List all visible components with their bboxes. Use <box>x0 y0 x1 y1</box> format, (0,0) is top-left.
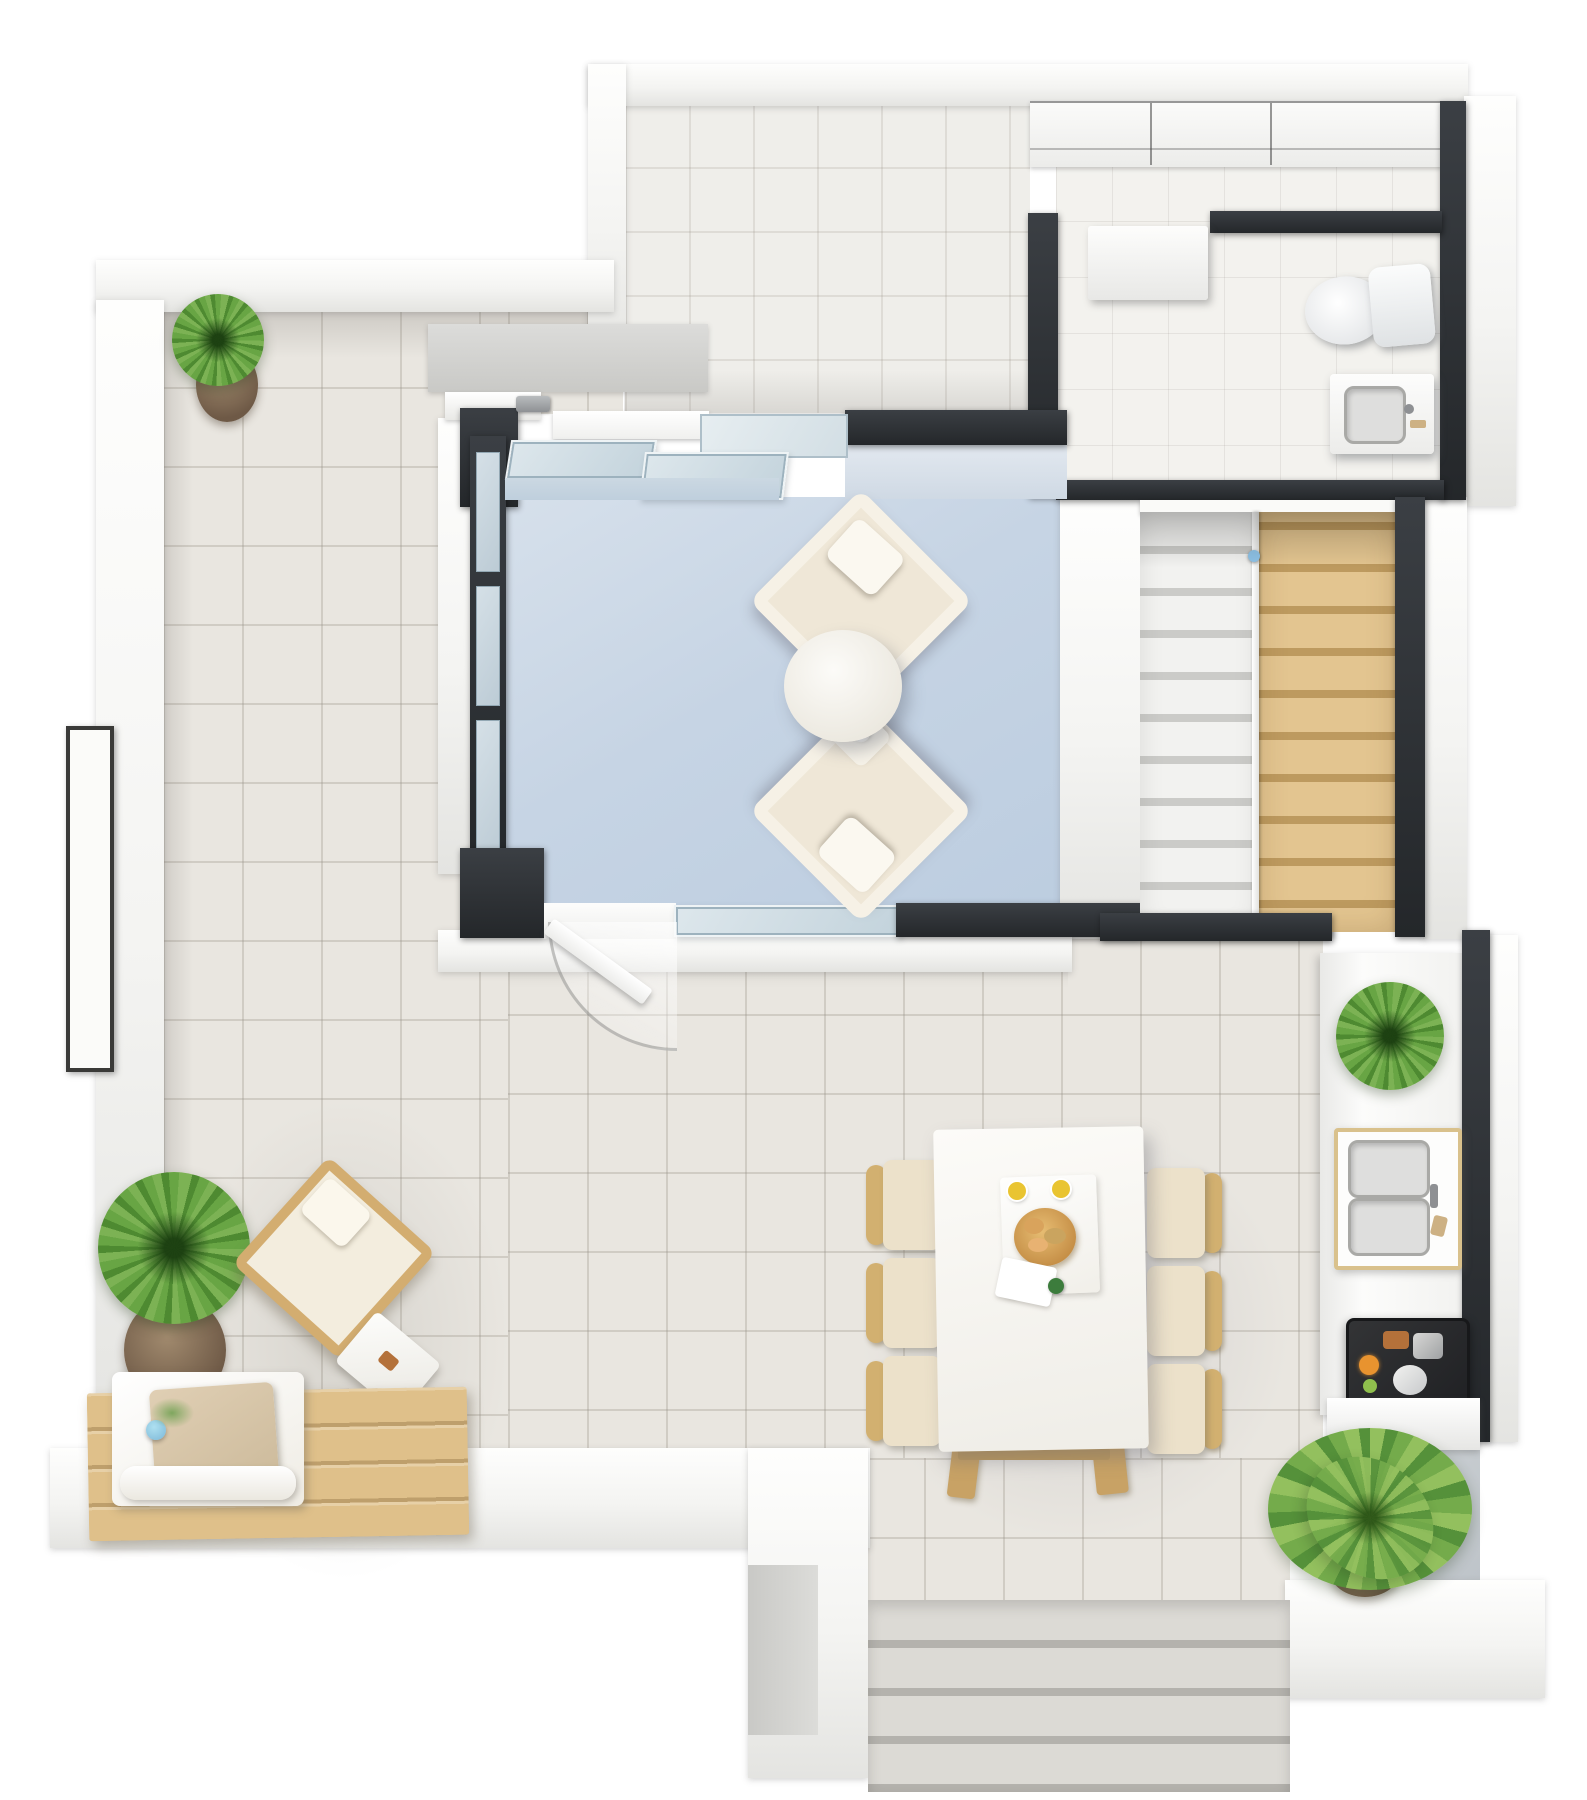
closet-top-seam <box>1030 101 1442 103</box>
steps-side-wall-face <box>748 1565 818 1735</box>
toilet <box>1302 260 1445 358</box>
bathroom-wall-shelf <box>1088 226 1208 300</box>
exit-steps <box>868 1600 1290 1792</box>
chair-back <box>1202 1271 1222 1351</box>
sliding-door-track <box>553 411 709 439</box>
cooktop-bowl <box>1393 1365 1427 1395</box>
slab-right-of-steps <box>1285 1580 1545 1698</box>
bread-basket <box>1014 1208 1076 1266</box>
floor-plan-render <box>0 0 1587 1800</box>
living-north-wall <box>845 410 1067 445</box>
bathroom-east-wall <box>1440 101 1466 500</box>
bath-faucet <box>1404 404 1414 414</box>
sliding-door-fitting <box>516 396 550 412</box>
dining-chair-right-3 <box>1146 1364 1222 1456</box>
kitchen-faucet <box>1430 1184 1438 1208</box>
glass-pane-1 <box>476 452 500 572</box>
drink-glass-1 <box>1008 1182 1026 1200</box>
west-wall-slot-window <box>66 726 114 1072</box>
chair-seat <box>1147 1168 1205 1258</box>
lounge-chair-cushion <box>299 1176 373 1249</box>
closet-gap-line <box>1030 148 1442 150</box>
stairwell-left-wall <box>1060 497 1140 939</box>
glass-pane-2 <box>476 586 500 706</box>
bathroom-vanity <box>1330 374 1434 454</box>
armchair-south-pillow <box>816 814 898 895</box>
bread-roll <box>1028 1238 1048 1252</box>
right-outer-band-top <box>1464 96 1516 506</box>
stair-railing <box>1252 512 1259 932</box>
chair-back <box>1202 1173 1222 1253</box>
dining-chair-right-1 <box>1146 1168 1222 1260</box>
cooktop-food-orange <box>1359 1355 1379 1375</box>
tray-table-item <box>377 1350 400 1372</box>
top-outer-wall <box>588 64 1468 106</box>
cooktop-food-green <box>1363 1379 1377 1393</box>
vanity-accessory <box>1410 420 1426 428</box>
dining-chair-left-3 <box>866 1356 942 1448</box>
closet-door-seam <box>1150 103 1152 165</box>
toilet-tank <box>1367 263 1436 348</box>
glass-pane-3 <box>476 720 500 860</box>
right-outer-band-kitchen <box>1488 935 1518 1442</box>
garnish-green <box>1048 1278 1064 1294</box>
armchair-north-pillow <box>824 516 906 597</box>
dining-chair-left-2 <box>866 1258 942 1350</box>
chair-seat <box>883 1160 941 1250</box>
drink-glass-2 <box>1052 1180 1070 1198</box>
daybed-vase-flowers <box>150 1398 194 1428</box>
closet-door-seam-2 <box>1270 103 1272 165</box>
sink-basin-top <box>1348 1140 1430 1198</box>
kitchen-sink-unit <box>1334 1128 1462 1270</box>
bathroom-north-wall <box>1210 211 1442 233</box>
cooktop-food-brown <box>1383 1331 1409 1349</box>
chair-seat <box>1147 1364 1205 1454</box>
daybed-bolster <box>120 1466 296 1500</box>
stairwell-east-wall <box>1395 497 1425 937</box>
coffee-table <box>784 630 902 742</box>
sink-utensils <box>1430 1215 1448 1238</box>
chair-seat <box>883 1356 941 1446</box>
washbasin <box>1344 386 1406 444</box>
cooktop-pan <box>1413 1333 1443 1359</box>
terrace-north-wall <box>96 260 614 312</box>
sliding-door-lower-face <box>505 478 779 500</box>
stair-flight-white <box>1140 512 1258 932</box>
counter-plant <box>1336 982 1444 1090</box>
stair-flight-wood <box>1258 512 1396 932</box>
living-north-wall-face <box>845 443 1067 499</box>
terrace-floor-steps-landing <box>845 1458 1290 1603</box>
stairwell-south-wall <box>1100 913 1332 941</box>
stairwell-north-wall <box>1056 480 1444 500</box>
chair-seat <box>883 1258 941 1348</box>
built-in-closet <box>1030 101 1442 167</box>
sliding-glass-panel-1 <box>505 440 657 480</box>
right-outer-band-stairs <box>1423 497 1467 939</box>
living-room-floor <box>505 497 1067 917</box>
dining-chair-left-1 <box>866 1160 942 1252</box>
sink-basin-bottom <box>1348 1198 1430 1256</box>
living-sw-corner-post <box>460 848 544 938</box>
dining-chair-right-2 <box>1146 1266 1222 1358</box>
hall-west-wall <box>588 64 626 364</box>
hall-west-wall-face <box>428 324 708 392</box>
corner-plant <box>172 294 264 386</box>
large-plant <box>98 1172 250 1324</box>
stair-railing-cap <box>1248 550 1260 562</box>
cooktop <box>1346 1318 1470 1410</box>
bread-roll <box>1024 1218 1044 1234</box>
chair-back <box>1202 1369 1222 1449</box>
chair-seat <box>1147 1266 1205 1356</box>
